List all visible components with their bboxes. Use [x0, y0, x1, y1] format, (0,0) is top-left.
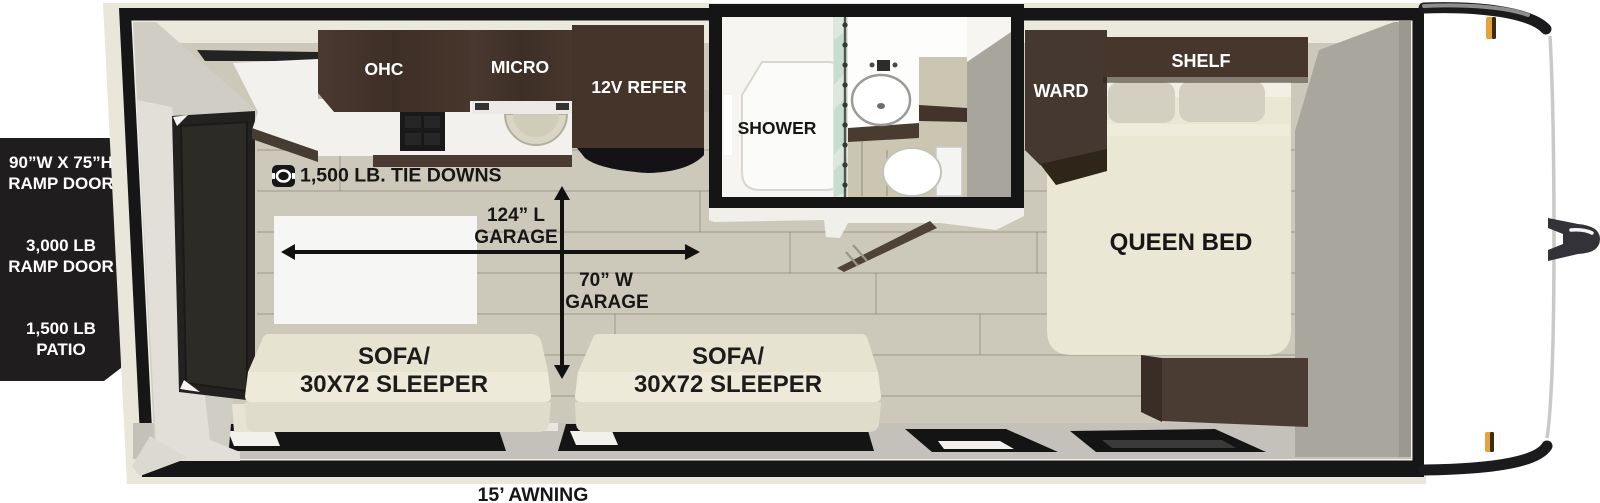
svg-text:124” L: 124” L	[487, 205, 545, 226]
svg-text:90”W X 75”H: 90”W X 75”H	[9, 153, 113, 172]
svg-text:1,500 LB. TIE DOWNS: 1,500 LB. TIE DOWNS	[300, 165, 502, 187]
svg-text:SHELF: SHELF	[1171, 51, 1230, 71]
svg-text:12V REFER: 12V REFER	[591, 77, 687, 97]
svg-text:SOFA/: SOFA/	[692, 343, 764, 370]
svg-text:SHOWER: SHOWER	[738, 118, 817, 138]
svg-text:SOFA/: SOFA/	[358, 343, 430, 370]
svg-text:1,500 LB: 1,500 LB	[26, 319, 96, 338]
svg-text:70” W: 70” W	[579, 270, 633, 291]
svg-text:MICRO: MICRO	[491, 57, 549, 77]
svg-text:30X72 SLEEPER: 30X72 SLEEPER	[300, 371, 488, 398]
svg-text:RAMP DOOR: RAMP DOOR	[8, 257, 113, 276]
svg-text:3,000 LB: 3,000 LB	[26, 236, 96, 255]
svg-text:PATIO: PATIO	[36, 340, 85, 359]
svg-text:OHC: OHC	[365, 59, 404, 79]
svg-text:RAMP DOOR: RAMP DOOR	[8, 174, 113, 193]
svg-text:GARAGE: GARAGE	[474, 227, 557, 248]
svg-text:QUEEN BED: QUEEN BED	[1110, 229, 1253, 256]
svg-text:WARD: WARD	[1034, 81, 1089, 101]
svg-text:GARAGE: GARAGE	[565, 292, 648, 313]
svg-text:15’ AWNING: 15’ AWNING	[478, 484, 589, 503]
svg-text:30X72 SLEEPER: 30X72 SLEEPER	[634, 371, 822, 398]
